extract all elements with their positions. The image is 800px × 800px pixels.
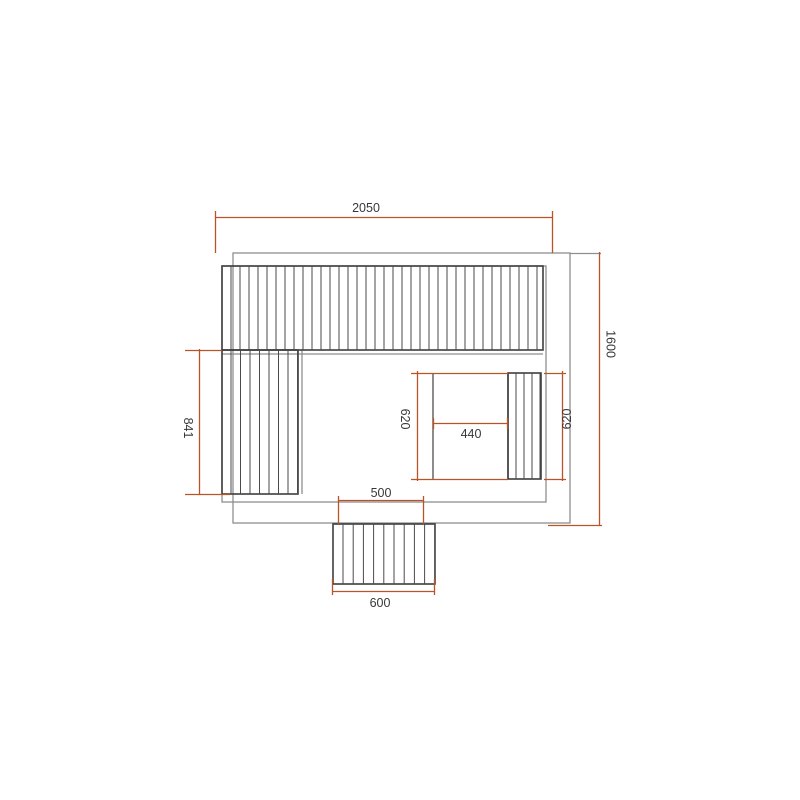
sauna-floor-plan-drawing: 2050 1600 841 620 440 620 500 600 bbox=[0, 0, 800, 800]
right-bench-hatching bbox=[516, 373, 540, 479]
dimension-labels: 2050 1600 841 620 440 620 500 600 bbox=[181, 201, 618, 610]
dim-step-width-label: 600 bbox=[370, 596, 391, 610]
dim-door-opening bbox=[338, 496, 424, 524]
dim-alcove-depth-left bbox=[411, 371, 508, 481]
dim-alcove-depth-left-label: 620 bbox=[398, 409, 412, 430]
dim-overall-width-label: 2050 bbox=[352, 201, 380, 215]
entry-step bbox=[333, 524, 435, 584]
dim-overall-depth-label: 1600 bbox=[604, 330, 618, 358]
dim-heater-width-label: 440 bbox=[461, 427, 482, 441]
heater bbox=[433, 373, 508, 479]
entry-step-hatching bbox=[343, 524, 435, 584]
right-bench bbox=[508, 373, 541, 479]
top-bench-hatching bbox=[231, 266, 537, 350]
dim-overall-depth bbox=[548, 252, 602, 526]
top-bench-outline bbox=[222, 266, 543, 350]
dim-door-opening-label: 500 bbox=[371, 486, 392, 500]
dim-alcove-depth-right-label: 620 bbox=[560, 409, 574, 430]
dim-left-bench-length-label: 841 bbox=[181, 418, 195, 439]
top-bench bbox=[222, 266, 543, 350]
dim-overall-width bbox=[215, 211, 553, 253]
left-bench-hatching bbox=[231, 350, 298, 494]
